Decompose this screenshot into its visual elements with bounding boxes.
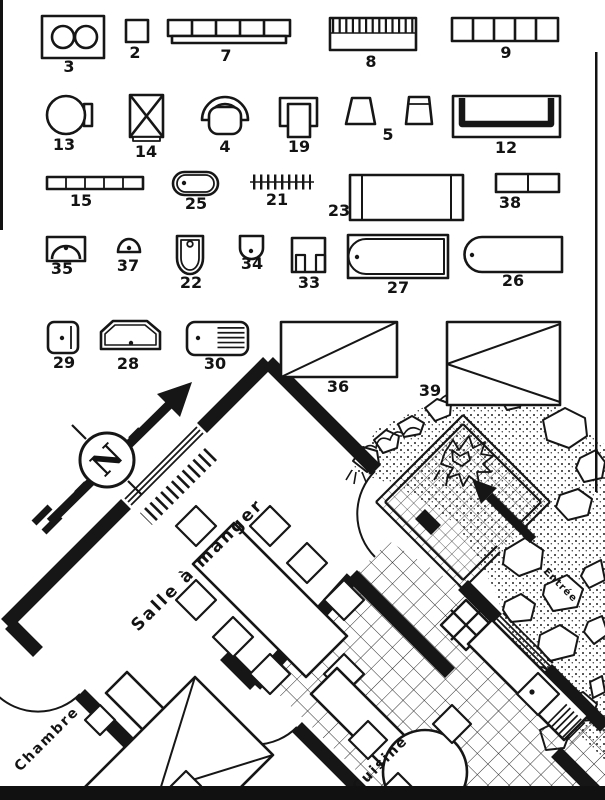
symbol-7-kitchen-unit (168, 20, 290, 43)
legend-number-38: 38 (499, 193, 521, 212)
symbol-2-stool (126, 20, 148, 42)
dining-patio-door-arc (357, 471, 375, 557)
legend-number-7: 7 (220, 46, 231, 65)
legend-number-29: 29 (53, 353, 75, 372)
radiator-ticks (146, 454, 211, 519)
legend-number-21: 21 (266, 190, 288, 209)
symbol-15-shelf (47, 177, 143, 189)
legend-number-2: 2 (129, 43, 140, 62)
legend-number-19: 19 (288, 137, 310, 156)
symbol-9-cabinet-row (452, 18, 558, 41)
wall-dining-nw-lower (6, 504, 126, 624)
symbol-23-table (350, 175, 463, 220)
symbol-4-armchair (202, 97, 248, 134)
legend-number-37: 37 (117, 256, 139, 275)
symbol-33-bidet (292, 238, 325, 272)
legend-number-12: 12 (495, 138, 517, 157)
symbol-19-chair (280, 98, 317, 137)
room-label-bedroom: Chambre (12, 704, 83, 775)
legend-number-28: 28 (117, 354, 139, 373)
legend-number-34: 34 (241, 254, 263, 273)
legend-number-8: 8 (365, 52, 376, 71)
symbol-8-appliance (330, 18, 416, 50)
symbol-25-cistern (173, 172, 218, 195)
symbol-28-kitchen-sink (101, 321, 160, 349)
legend-number-36: 36 (327, 377, 349, 396)
symbol-5-chairs (346, 97, 432, 124)
legend-number-26: 26 (502, 271, 524, 290)
legend-number-13: 13 (53, 135, 75, 154)
floor-plan: N Salle à manger Chambre Cuisine Entrée (0, 362, 605, 800)
symbol-27-bathtub (348, 235, 448, 278)
legend-number-14: 14 (135, 142, 157, 161)
legend-number-23: 23 (328, 201, 350, 220)
symbol-30-sink-drainboard (187, 322, 248, 355)
legend-number-25: 25 (185, 194, 207, 213)
legend-symbols (42, 16, 562, 405)
symbol-3-cooktop (42, 16, 104, 58)
legend-number-33: 33 (298, 273, 320, 292)
symbol-37-small-basin (118, 239, 140, 252)
legend-number-3: 3 (63, 57, 74, 76)
symbol-38-cabinet (496, 174, 559, 192)
legend-number-9: 9 (500, 43, 511, 62)
symbol-12-sofa (453, 96, 560, 137)
legend-number-22: 22 (180, 273, 202, 292)
legend-number-35: 35 (51, 259, 73, 278)
symbol-22-toilet (177, 236, 203, 274)
symbol-35-vanity-basin (47, 237, 85, 261)
symbol-26-bathtub-plain (465, 237, 562, 272)
scanned-plan-page: N Salle à manger Chambre Cuisine Entrée (0, 0, 605, 800)
legend-number-5: 5 (382, 125, 393, 144)
legend-number-39: 39 (419, 381, 441, 400)
legend-number-27: 27 (387, 278, 409, 297)
legend-number-15: 15 (70, 191, 92, 210)
wall-bedroom-a (10, 624, 38, 652)
symbol-39-double-bed (447, 322, 560, 405)
symbol-14-refrigerator (130, 95, 163, 141)
symbol-13-round-table (47, 96, 92, 134)
symbol-29-shower-tray (48, 322, 78, 353)
legend-number-30: 30 (204, 354, 226, 373)
floor-plan-drawing: N Salle à manger Chambre Cuisine Entrée (0, 0, 605, 800)
symbol-36-single-bed (281, 322, 397, 377)
legend-number-4: 4 (219, 137, 230, 156)
